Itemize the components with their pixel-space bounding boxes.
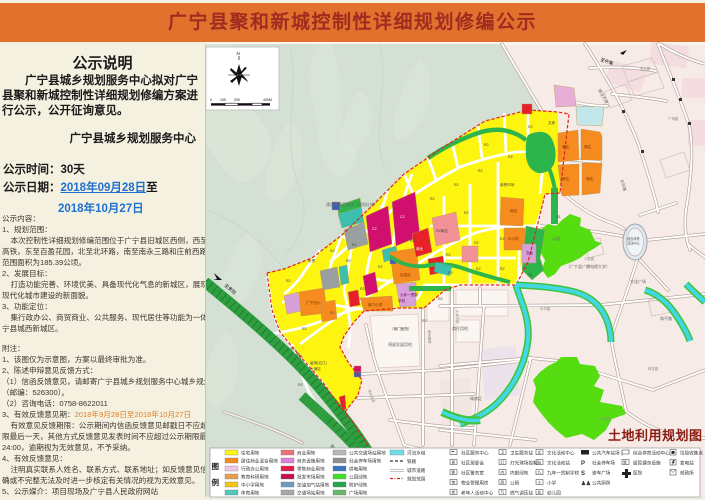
svg-text:R2: R2: [378, 265, 383, 269]
svg-text:城南区: 城南区: [470, 395, 482, 401]
svg-text:R2: R2: [446, 253, 451, 257]
svg-text:交通场站用地: 交通场站用地: [297, 490, 325, 497]
svg-text:供电用地: 供电用地: [349, 466, 368, 473]
svg-text:气: 气: [501, 490, 505, 495]
svg-text:100: 100: [220, 98, 226, 102]
svg-text:土地利用规划图: 土地利用规划图: [608, 428, 703, 443]
svg-text:铁路: 铁路: [407, 458, 417, 465]
svg-text:公共交通场站用地: 公共交通场站用地: [349, 450, 386, 457]
svg-text:☂: ☂: [451, 450, 455, 455]
svg-text:加油站: 加油站: [400, 272, 411, 277]
svg-text:文化: 文化: [526, 250, 534, 255]
svg-text:公共厕所: 公共厕所: [592, 480, 611, 487]
svg-text:城市道路: 城市道路: [407, 467, 426, 474]
svg-text:R2: R2: [476, 267, 481, 271]
svg-text:中小学用地: 中小学用地: [241, 482, 264, 489]
svg-text:商务设施用地: 商务设施用地: [297, 458, 325, 465]
svg-text:文: 文: [538, 450, 542, 455]
svg-text:社会停车场: 社会停车场: [592, 460, 615, 467]
svg-text:物业管理用房: 物业管理用房: [461, 480, 489, 487]
svg-text:预留发展用地: 预留发展用地: [388, 341, 412, 347]
svg-text:批发市场用地: 批发市场用地: [297, 474, 325, 481]
svg-text:城北路: 城北路: [640, 66, 651, 71]
svg-text:灯: 灯: [501, 460, 505, 465]
svg-text:N: N: [237, 51, 240, 56]
svg-text:南街镇路: 南街镇路: [427, 330, 432, 344]
svg-text:警: 警: [452, 470, 456, 475]
svg-text:（广宁县广播电视大学）: （广宁县广播电视大学）: [566, 263, 610, 269]
svg-text:学校: 学校: [398, 298, 406, 303]
svg-text:（南门医院）: （南门医院）: [390, 326, 412, 331]
svg-text:九年一贯制学校: 九年一贯制学校: [547, 470, 580, 477]
svg-text:R2: R2: [330, 311, 335, 315]
svg-text:卫生服务站: 卫生服务站: [510, 450, 533, 457]
svg-text:G1: G1: [556, 215, 561, 219]
svg-text:医院: 医院: [633, 470, 643, 477]
svg-text:S: S: [581, 471, 585, 477]
svg-text:R2: R2: [352, 243, 357, 247]
svg-text:零售商业用地: 零售商业用地: [297, 466, 325, 473]
svg-text:厕: 厕: [501, 481, 505, 485]
svg-text:R2: R2: [410, 239, 415, 243]
svg-text:建设用地范围线（规划红线）: 建设用地范围线（规划红线）: [326, 201, 378, 207]
svg-text:社区警务室: 社区警务室: [461, 470, 484, 477]
svg-text:九: 九: [538, 470, 542, 475]
svg-text:小学: 小学: [547, 480, 557, 487]
svg-text:南门小学: 南门小学: [368, 302, 383, 307]
svg-text:R2: R2: [454, 183, 459, 187]
svg-text:R2: R2: [298, 383, 303, 387]
svg-text:R2: R2: [346, 259, 351, 263]
svg-text:R2: R2: [508, 155, 513, 159]
svg-text:文化活动中心: 文化活动中心: [547, 450, 575, 457]
svg-text:教育科研用地: 教育科研用地: [241, 474, 269, 481]
svg-text:文化广场: 文化广场: [630, 278, 646, 284]
svg-text:居: 居: [452, 460, 456, 465]
svg-text:幼: 幼: [538, 490, 542, 495]
svg-text:商业用地: 商业用地: [297, 450, 316, 457]
svg-text:商贸市场: 商贸市场: [500, 182, 515, 187]
svg-text:商住: 商住: [584, 144, 592, 149]
svg-text:商住用地: 商住用地: [452, 325, 468, 331]
svg-text:社区居委会: 社区居委会: [461, 460, 484, 467]
svg-text:灯光球场控制: 灯光球场控制: [510, 460, 538, 467]
svg-text:九年一贯制: 九年一贯制: [400, 292, 418, 297]
svg-text:体育用地: 体育用地: [241, 490, 260, 497]
svg-text:站: 站: [538, 460, 542, 465]
svg-text:商业: 商业: [416, 246, 424, 251]
svg-text:居民健身设施: 居民健身设施: [633, 460, 661, 467]
svg-text:变电站: 变电站: [680, 460, 694, 467]
svg-text:R2: R2: [464, 211, 469, 215]
svg-text:R2商住: R2商住: [436, 228, 448, 233]
svg-text:活动中心: 活动中心: [627, 241, 641, 246]
svg-text:广场用地: 广场用地: [349, 490, 368, 497]
svg-text:公园: 公园: [552, 235, 560, 241]
svg-text:商住: 商住: [586, 176, 594, 181]
svg-text:内部绿地: 内部绿地: [510, 470, 529, 477]
svg-text:燃气调压站: 燃气调压站: [510, 490, 533, 497]
svg-text:公共汽车站场: 公共汽车站场: [592, 450, 620, 457]
svg-text:速车广场: 速车广场: [592, 470, 611, 477]
svg-text:留用(沿江): 留用(沿江): [310, 360, 327, 365]
svg-text:R2: R2: [478, 169, 483, 173]
svg-text:R2: R2: [302, 327, 307, 331]
svg-text:♟♟: ♟♟: [581, 480, 591, 487]
svg-text:C2: C2: [372, 227, 377, 231]
svg-text:住宅用地: 住宅用地: [241, 450, 260, 457]
svg-text:R2: R2: [360, 287, 365, 291]
svg-text:R2: R2: [448, 271, 453, 275]
svg-text:综合体育: 综合体育: [627, 236, 640, 241]
svg-text:R2: R2: [484, 143, 489, 147]
svg-text:小: 小: [538, 480, 542, 485]
svg-text:加油加气站用地: 加油加气站用地: [297, 482, 330, 489]
svg-text:垃圾收集点: 垃圾收集点: [680, 450, 703, 457]
svg-text:商住: 商住: [562, 176, 570, 181]
svg-text:物: 物: [452, 480, 456, 485]
svg-text:中小学: 中小学: [508, 236, 519, 241]
svg-text:公园绿地: 公园绿地: [349, 474, 368, 481]
svg-text:邮政所: 邮政所: [680, 470, 694, 477]
svg-text:社会停车场用地: 社会停车场用地: [349, 458, 382, 465]
svg-text:居住商业混合用地: 居住商业混合用地: [241, 458, 278, 465]
svg-text:R2: R2: [438, 297, 443, 301]
svg-text:图: 图: [212, 462, 220, 471]
svg-text:400M: 400M: [263, 98, 272, 102]
svg-text:综合体育活动中心: 综合体育活动中心: [633, 450, 670, 457]
svg-text:R2: R2: [430, 197, 435, 201]
svg-text:P: P: [581, 461, 585, 467]
svg-text:R2: R2: [422, 319, 427, 323]
svg-text:人民路: 人民路: [584, 256, 595, 261]
svg-text:G1: G1: [528, 273, 533, 277]
svg-text:R2: R2: [330, 249, 335, 253]
svg-text:R2: R2: [286, 279, 291, 283]
svg-text:宁城路: 宁城路: [600, 416, 611, 421]
svg-text:例: 例: [212, 477, 220, 487]
svg-text:文体: 文体: [548, 120, 556, 125]
svg-text:大酒店: 大酒店: [310, 366, 321, 371]
svg-text:商住: 商住: [510, 208, 518, 213]
svg-text:中华路: 中华路: [540, 306, 551, 311]
svg-text:健: 健: [623, 460, 627, 465]
svg-text:河流水域: 河流水域: [407, 450, 426, 457]
svg-text:0: 0: [210, 98, 212, 102]
svg-text:R2: R2: [500, 267, 505, 271]
svg-text:规划范围: 规划范围: [407, 476, 426, 483]
svg-text:幼儿园: 幼儿园: [547, 490, 561, 497]
svg-text:文化活动站: 文化活动站: [547, 460, 570, 467]
svg-text:老年人活动中心: 老年人活动中心: [461, 490, 494, 497]
svg-text:R2: R2: [528, 125, 533, 129]
svg-text:C2: C2: [400, 215, 405, 219]
svg-text:200: 200: [234, 98, 240, 102]
svg-text:防护绿地: 防护绿地: [349, 482, 368, 489]
svg-text:广场路: 广场路: [668, 116, 679, 121]
svg-text:广宁四小: 广宁四小: [306, 300, 321, 305]
svg-text:社区服务中心: 社区服务中心: [461, 450, 489, 457]
svg-text:工业大道: 工业大道: [455, 310, 460, 324]
svg-text:荷花路: 荷花路: [648, 366, 659, 371]
svg-text:卫: 卫: [501, 451, 505, 455]
svg-text:行政办公用地: 行政办公用地: [241, 466, 269, 473]
svg-text:R2: R2: [500, 237, 505, 241]
svg-text:R2: R2: [474, 241, 479, 245]
svg-text:和平路: 和平路: [660, 315, 672, 321]
svg-text:永青: 永青: [308, 258, 316, 263]
svg-text:内: 内: [501, 470, 505, 475]
svg-text:老: 老: [452, 490, 456, 495]
svg-text:商住: 商住: [562, 144, 570, 149]
